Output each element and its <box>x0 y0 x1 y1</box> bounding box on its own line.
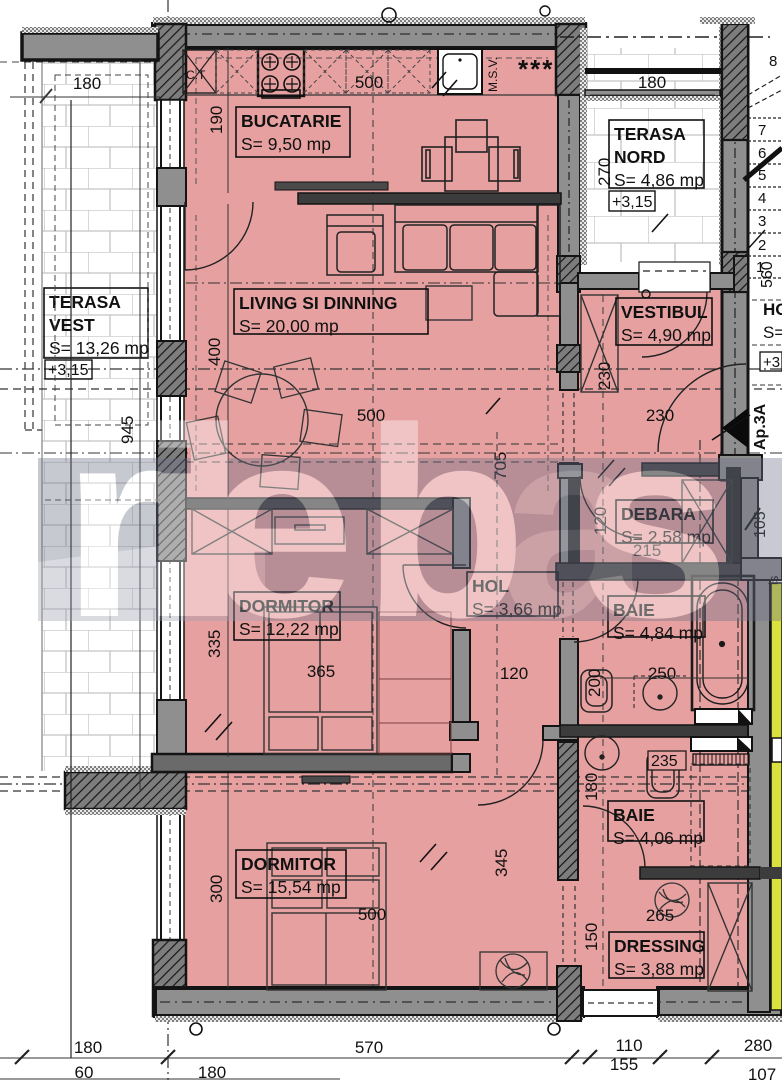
svg-text:S= 15,54 mp: S= 15,54 mp <box>241 877 341 897</box>
svg-text:S= 4,06 mp: S= 4,06 mp <box>613 828 703 848</box>
svg-text:S= 20,00 mp: S= 20,00 mp <box>239 316 339 336</box>
svg-text:560: 560 <box>759 261 776 288</box>
svg-text:2: 2 <box>758 237 766 254</box>
svg-text:S= 13,26 mp: S= 13,26 mp <box>49 338 149 358</box>
svg-text:S=: S= <box>763 323 782 342</box>
svg-text:180: 180 <box>638 73 666 92</box>
svg-text:DRESSING: DRESSING <box>614 936 705 956</box>
svg-text:265: 265 <box>646 906 674 925</box>
svg-text:280: 280 <box>744 1036 772 1055</box>
svg-text:VESTIBUL: VESTIBUL <box>621 302 708 322</box>
svg-text:180: 180 <box>74 1038 102 1057</box>
svg-text:rilebas: rilebas <box>62 373 730 674</box>
svg-text:HO: HO <box>763 300 782 319</box>
svg-text:190: 190 <box>207 106 226 134</box>
svg-text:110: 110 <box>615 1036 642 1055</box>
svg-text:LIVING SI DINNING: LIVING SI DINNING <box>239 293 397 313</box>
svg-text:8: 8 <box>769 53 777 70</box>
svg-text:180: 180 <box>582 773 601 801</box>
svg-text:+3: +3 <box>763 354 780 371</box>
svg-text:155: 155 <box>610 1055 638 1074</box>
svg-text:S= 3,88 mp: S= 3,88 mp <box>614 959 704 979</box>
svg-text:BUCATARIE: BUCATARIE <box>241 111 341 131</box>
svg-text:500: 500 <box>355 73 383 92</box>
svg-text:570: 570 <box>355 1038 383 1057</box>
svg-text:+3,15: +3,15 <box>612 194 653 211</box>
svg-text:60: 60 <box>75 1063 94 1080</box>
svg-text:107: 107 <box>748 1065 776 1080</box>
svg-text:BAIE: BAIE <box>613 805 655 825</box>
svg-text:500: 500 <box>358 905 386 924</box>
svg-text:300: 300 <box>207 875 226 903</box>
svg-text:***: *** <box>518 54 554 84</box>
svg-text:C.T: C.T <box>186 68 206 82</box>
svg-text:180: 180 <box>73 74 101 93</box>
svg-text:M.S.V.: M.S.V. <box>486 57 500 92</box>
svg-text:TERASA: TERASA <box>49 292 121 312</box>
svg-text:4: 4 <box>758 190 766 207</box>
svg-text:3: 3 <box>758 213 766 230</box>
svg-text:VEST: VEST <box>49 315 95 335</box>
svg-text:NORD: NORD <box>614 147 666 167</box>
svg-text:180: 180 <box>198 1063 226 1080</box>
svg-text:235: 235 <box>651 753 678 770</box>
svg-text:DORMITOR: DORMITOR <box>241 854 336 874</box>
svg-text:150: 150 <box>582 923 601 951</box>
svg-text:Ap.3A: Ap.3A <box>752 403 769 450</box>
svg-text:S= 4,90 mp: S= 4,90 mp <box>621 325 711 345</box>
svg-text:S= 9,50 mp: S= 9,50 mp <box>241 134 331 154</box>
svg-text:345: 345 <box>492 849 511 877</box>
svg-text:S= 4,86 mp: S= 4,86 mp <box>614 170 704 190</box>
svg-text:TERASA: TERASA <box>614 124 686 144</box>
svg-text:400: 400 <box>205 338 224 366</box>
svg-text:270: 270 <box>595 158 614 186</box>
svg-text:7: 7 <box>758 122 766 139</box>
